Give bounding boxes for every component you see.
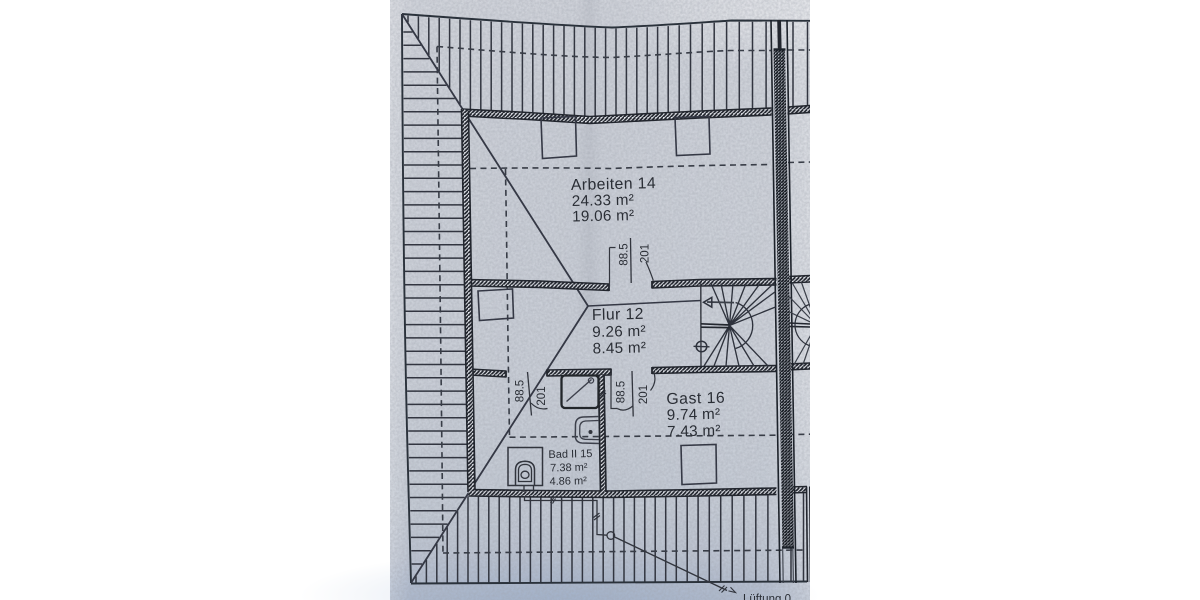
svg-text:Bad II 15: Bad II 15	[548, 448, 592, 461]
svg-text:19.06 m²: 19.06 m²	[572, 207, 635, 225]
svg-text:7.38 m²: 7.38 m²	[550, 462, 588, 475]
svg-text:88.5: 88.5	[515, 380, 527, 402]
svg-text:Flur 12: Flur 12	[592, 306, 644, 324]
svg-text:201: 201	[638, 385, 650, 404]
svg-text:8.45 m²: 8.45 m²	[592, 339, 646, 357]
svg-text:88.5: 88.5	[619, 243, 631, 265]
svg-text:Lüftung 0: Lüftung 0	[743, 594, 791, 600]
svg-text:201: 201	[536, 386, 548, 405]
svg-text:4.86 m²: 4.86 m²	[549, 475, 587, 488]
svg-text:7.43 m²: 7.43 m²	[667, 422, 721, 440]
svg-text:88.5: 88.5	[616, 381, 628, 403]
svg-text:201: 201	[640, 244, 652, 263]
svg-text:9.74 m²: 9.74 m²	[667, 406, 721, 424]
svg-text:9.26 m²: 9.26 m²	[592, 323, 646, 341]
